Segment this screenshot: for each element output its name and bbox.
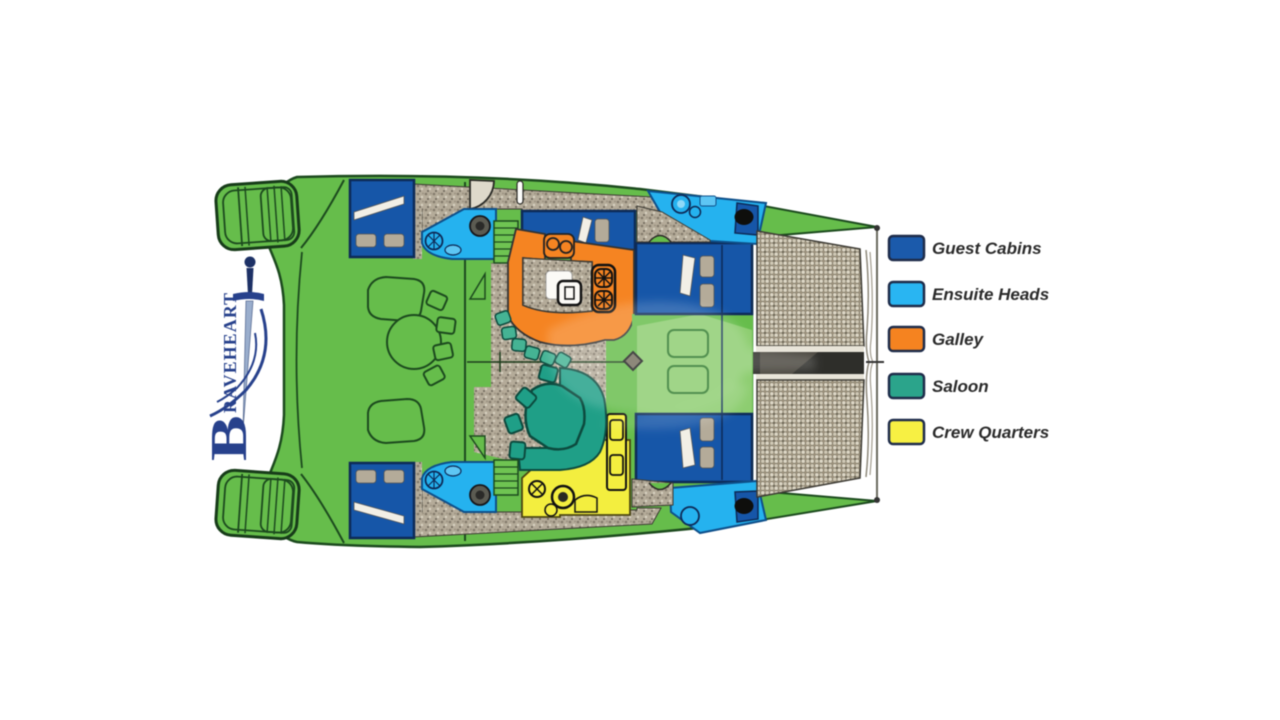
svg-text:Ensuite Heads: Ensuite Heads <box>932 285 1049 304</box>
svg-text:B: B <box>201 415 258 461</box>
svg-text:RAVEHEART: RAVEHEART <box>220 292 240 413</box>
svg-text:Galley: Galley <box>932 330 985 349</box>
svg-text:Guest Cabins: Guest Cabins <box>932 239 1042 258</box>
svg-text:Crew Quarters: Crew Quarters <box>932 423 1049 442</box>
svg-text:Saloon: Saloon <box>932 377 989 396</box>
